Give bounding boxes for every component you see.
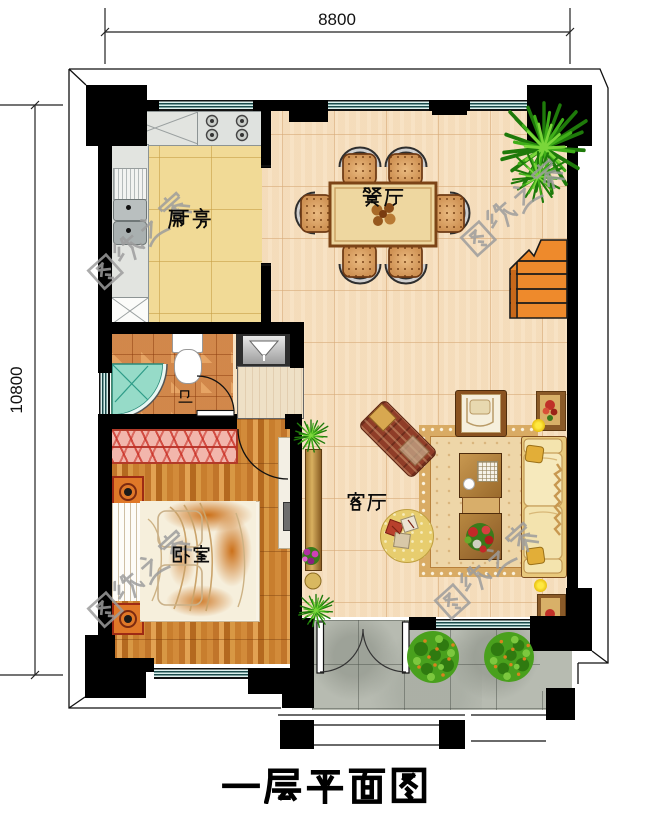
svg-text:8800: 8800 <box>318 10 356 29</box>
svg-text:10800: 10800 <box>7 366 26 413</box>
